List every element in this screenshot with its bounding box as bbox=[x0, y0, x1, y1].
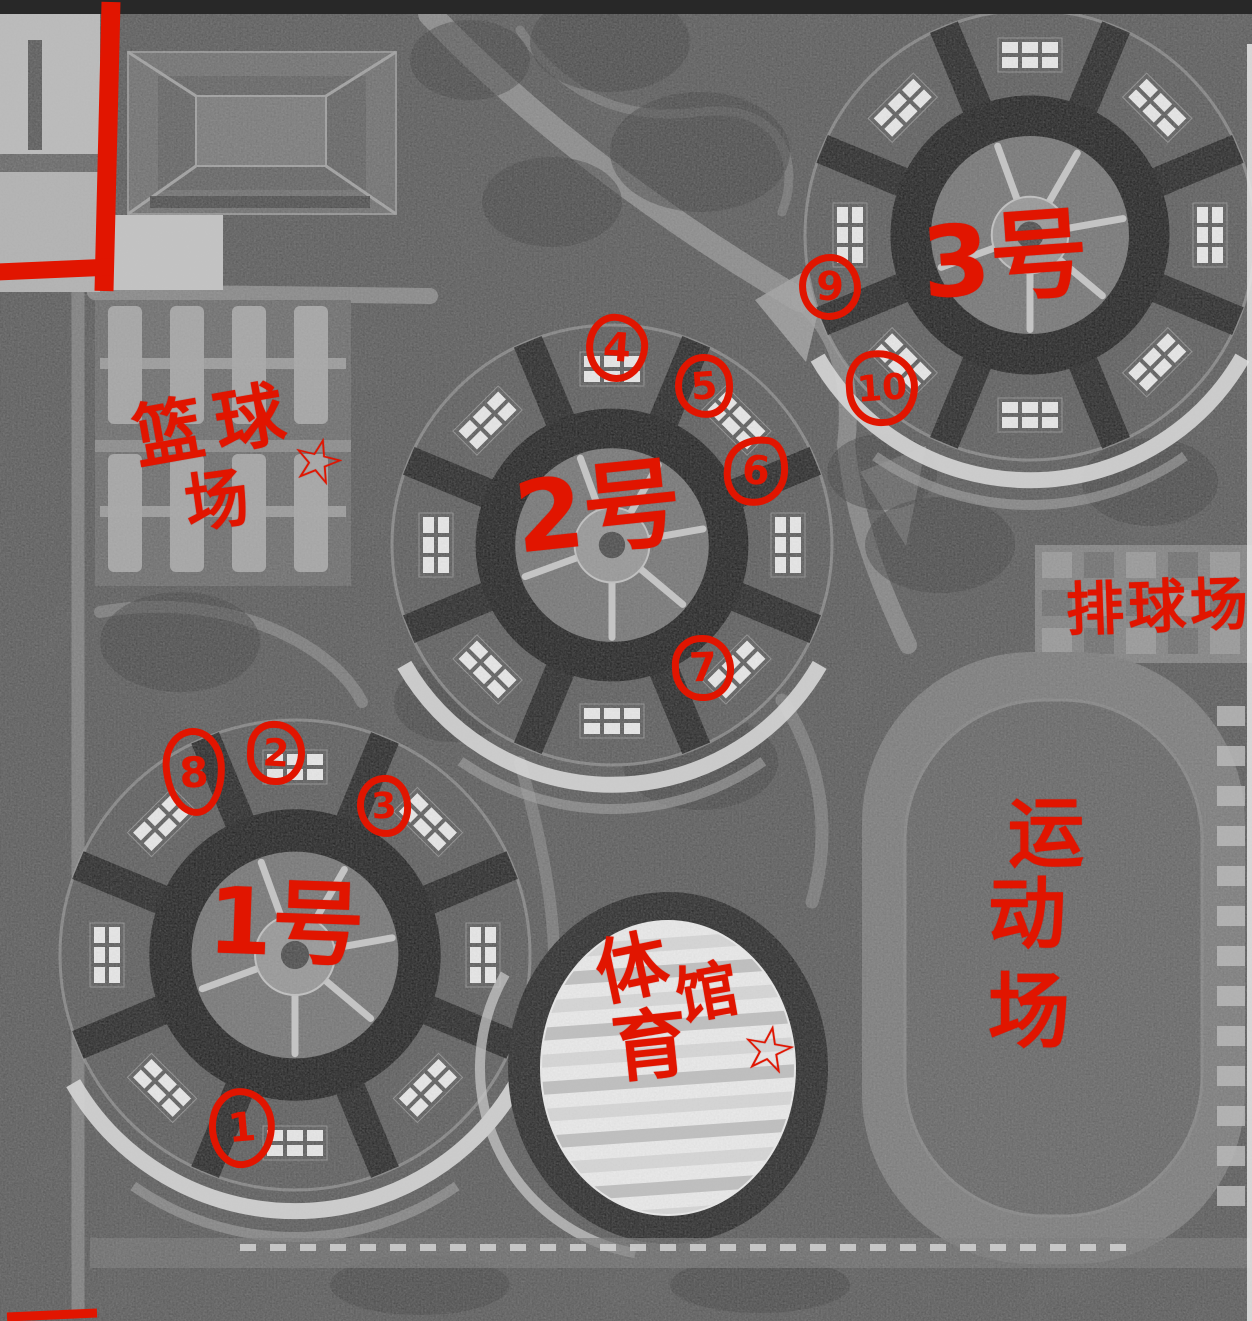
building-1-label: 1号 bbox=[206, 875, 365, 972]
sports-field-label-char-chang: 场 bbox=[988, 972, 1070, 1054]
top-frame-bar bbox=[0, 0, 1252, 14]
right-edge-strip bbox=[1247, 44, 1252, 1321]
sports-field-label-char-dong: 动 bbox=[988, 876, 1066, 954]
gymnasium-label-char-ti: 体 bbox=[589, 925, 674, 1010]
basketball-court-label-2: 场 bbox=[181, 466, 253, 538]
building-3-label: 3号 bbox=[919, 204, 1092, 313]
volleyball-court-label: 排球场 bbox=[1065, 575, 1252, 639]
sports-field-label-char-yun: 运 bbox=[1008, 796, 1084, 872]
gymnasium-label-char-yu: 育 bbox=[608, 1004, 692, 1088]
building-2-label: 2号 bbox=[510, 454, 686, 569]
annotated-satellite-map: 篮球 场 ☆ 2号 3号 1号 体 馆 育 ☆ 排球场 运 动 场 1 2 3 … bbox=[0, 0, 1252, 1321]
gymnasium-star-icon: ☆ bbox=[735, 1014, 803, 1087]
